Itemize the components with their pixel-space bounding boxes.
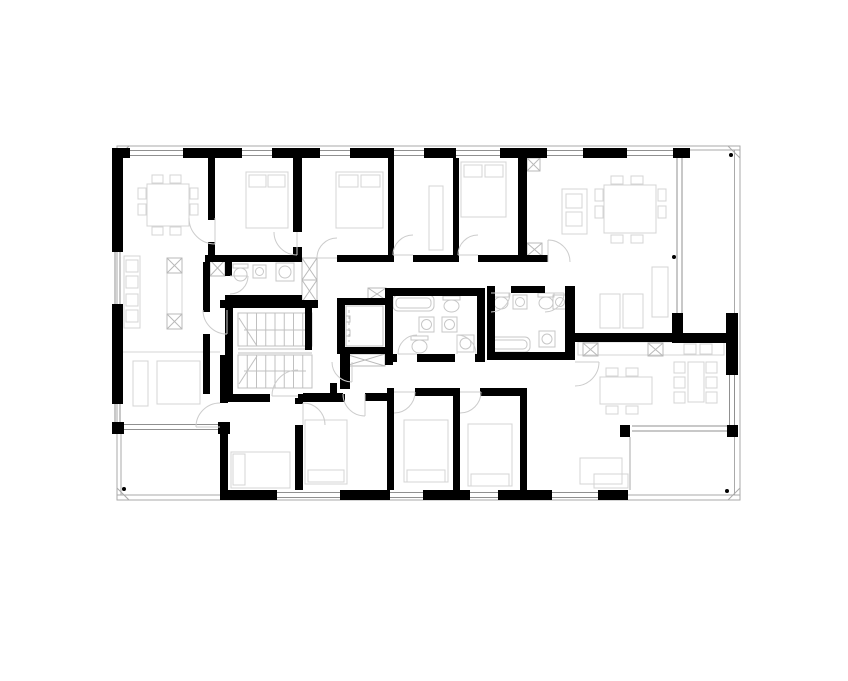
wall [487, 352, 575, 360]
toilet [539, 297, 553, 309]
wall [337, 255, 393, 262]
wall [453, 158, 459, 262]
bed [468, 424, 512, 486]
wall [305, 300, 312, 350]
elevator [346, 306, 383, 346]
chair [706, 377, 717, 388]
wall [415, 388, 453, 396]
wall [598, 490, 628, 500]
wall [112, 304, 123, 404]
chair [606, 368, 618, 376]
chair [170, 175, 181, 183]
wall [203, 262, 210, 312]
wall [350, 148, 394, 158]
chair [631, 176, 643, 184]
wall [498, 490, 552, 500]
wall [388, 158, 394, 262]
drain-dot [729, 153, 733, 157]
toilet [444, 300, 459, 312]
side-table [157, 361, 200, 404]
chair [674, 362, 685, 373]
pillow [233, 454, 245, 485]
wall [112, 148, 130, 158]
wall [478, 255, 548, 262]
wall [672, 333, 734, 343]
drain-dot [725, 489, 729, 493]
wall [417, 354, 455, 362]
door-arc [303, 403, 325, 425]
toilet [494, 297, 508, 309]
door-arc [394, 392, 415, 413]
pillow [464, 165, 482, 177]
dining-table [147, 184, 189, 226]
wall [220, 355, 228, 403]
toilet-tank [538, 293, 554, 297]
wall [480, 388, 520, 396]
sink-basin [445, 320, 455, 330]
chair [706, 392, 717, 403]
chair [611, 176, 623, 184]
chair [138, 188, 146, 199]
sideboard [594, 474, 628, 488]
wall [500, 148, 547, 158]
wall [365, 393, 387, 401]
pillow [485, 165, 503, 177]
wall [565, 286, 575, 360]
armchair [133, 361, 148, 406]
sink-basin [516, 298, 525, 307]
wall [620, 425, 630, 437]
dining-table [688, 362, 704, 402]
wardrobe [429, 186, 443, 250]
bathtub-inner [396, 298, 431, 308]
dining-table [600, 377, 652, 404]
sink-basin [422, 320, 432, 330]
chair [606, 406, 618, 414]
toilet-tank [411, 336, 428, 340]
door-arc [272, 370, 298, 396]
door-arc [393, 235, 413, 255]
drain-dot [672, 255, 676, 259]
pillow [407, 470, 445, 482]
door-arc [189, 218, 215, 244]
chair [674, 377, 685, 388]
toilet [412, 340, 427, 353]
sideboard [652, 267, 668, 317]
chair [674, 392, 685, 403]
wall [225, 262, 232, 276]
chair [190, 204, 198, 215]
washing-machine-drum [279, 266, 291, 278]
pillow [249, 175, 266, 187]
chair [626, 406, 638, 414]
wall [520, 388, 527, 490]
wall [220, 300, 318, 308]
wall [337, 298, 390, 305]
chair [152, 227, 163, 235]
wall [583, 148, 627, 158]
drain-dot [122, 487, 126, 491]
kitchen-appliance [566, 212, 582, 226]
chair [631, 235, 643, 243]
wall [112, 158, 123, 252]
washing-machine [539, 331, 555, 347]
chair [658, 206, 666, 218]
wall [208, 158, 215, 220]
pillow [471, 474, 509, 486]
wall [423, 490, 470, 500]
door-arc [317, 238, 337, 258]
wall [295, 398, 303, 404]
washing-machine-drum [542, 334, 552, 344]
floor-plan [0, 0, 848, 681]
wall [487, 286, 495, 360]
toilet-tank [443, 296, 460, 300]
wall [293, 158, 302, 232]
door-arc [203, 310, 227, 334]
door-arc [575, 362, 599, 386]
wall [222, 490, 277, 500]
door-arc [460, 392, 481, 413]
wall [183, 148, 242, 158]
wall [295, 425, 303, 490]
kitchen-appliance [684, 344, 696, 354]
wall [203, 334, 210, 394]
kitchen-appliance [126, 294, 138, 306]
door-arc [458, 235, 478, 255]
wall [672, 313, 683, 335]
bed [231, 452, 290, 488]
lounge-chair [600, 294, 620, 328]
stair-line [239, 318, 257, 346]
toilet-tank [493, 293, 509, 297]
bathtub-inner [492, 340, 527, 349]
chair [626, 368, 638, 376]
wall [413, 255, 458, 262]
pillow [308, 470, 344, 482]
wall [385, 288, 485, 296]
wall [220, 425, 228, 500]
kitchen-appliance [700, 344, 712, 354]
kitchen-appliance [566, 194, 582, 208]
wall [385, 354, 397, 362]
bed [461, 162, 506, 217]
sofa [580, 458, 622, 484]
wall [112, 422, 124, 434]
wall [453, 388, 460, 490]
chair [190, 188, 198, 199]
chair [595, 206, 603, 218]
wall [225, 394, 270, 402]
kitchen-appliance [126, 310, 138, 322]
chair [138, 204, 146, 215]
bed [305, 420, 347, 484]
wall [303, 393, 343, 401]
door-arc [196, 403, 220, 427]
bed [404, 420, 448, 482]
wall [340, 347, 350, 389]
wall [337, 298, 345, 354]
sink [253, 265, 266, 278]
wall [387, 388, 394, 490]
chair [611, 235, 623, 243]
wall [518, 158, 527, 262]
bathtub [489, 337, 530, 352]
wall [477, 288, 485, 362]
wall [673, 148, 690, 158]
pillow [339, 175, 358, 187]
wall [424, 148, 456, 158]
wall [272, 148, 320, 158]
wall [726, 313, 738, 375]
wall [385, 288, 393, 365]
toilet-tank [233, 264, 248, 268]
lounge-chair [623, 294, 643, 328]
floor-plan-drawing [0, 0, 848, 681]
wall [340, 490, 390, 500]
wall [727, 425, 738, 437]
chair [152, 175, 163, 183]
kitchen-appliance [126, 276, 138, 288]
sink-basin [256, 268, 264, 276]
toilet [234, 268, 247, 281]
chair [658, 189, 666, 201]
stair-line [239, 356, 257, 384]
kitchen-appliance [126, 260, 138, 272]
pillow [361, 175, 380, 187]
bed [336, 172, 383, 228]
chair [706, 362, 717, 373]
door-arc [548, 240, 570, 262]
wall [205, 255, 302, 262]
bed [246, 172, 288, 228]
bathtub [393, 295, 434, 311]
kitchen-island [167, 258, 182, 329]
chair [595, 189, 603, 201]
chair [170, 227, 181, 235]
dining-table [604, 185, 656, 233]
wall [575, 333, 675, 342]
door-arc [343, 394, 365, 416]
wall [511, 286, 545, 293]
pillow [268, 175, 285, 187]
